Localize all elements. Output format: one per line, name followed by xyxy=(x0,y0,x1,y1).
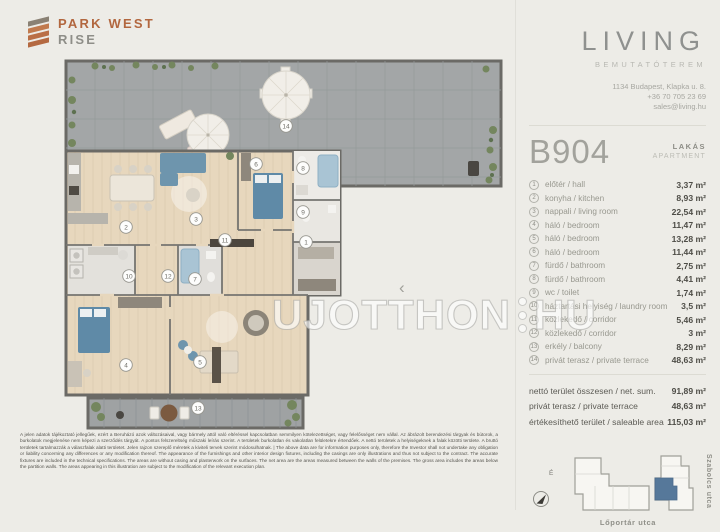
summary-row: privát terasz / private terrace48,63 m² xyxy=(529,399,706,415)
room-area: 8,93 m² xyxy=(676,193,706,203)
brand-name-line2: RISE xyxy=(58,32,155,47)
room-label: erkély / balcony xyxy=(545,342,602,351)
floor-plan-pin-number: 8 xyxy=(301,165,305,172)
unit-type-hu: LAKÁS xyxy=(653,142,706,151)
showroom-logo: LIVING xyxy=(529,26,706,57)
room-label: fürdő / bathroom xyxy=(545,261,605,270)
showroom-email: sales@living.hu xyxy=(529,102,706,112)
area-summary: nettó terület összesen / net. sum.91,89 … xyxy=(529,374,706,430)
floor-plan-pin-number: 11 xyxy=(222,237,229,244)
showroom-phone: +36 70 705 23 69 xyxy=(529,92,706,102)
room-row: 1előtér / hall3,37 m² xyxy=(529,178,706,192)
showroom-subtitle: BEMUTATÓTEREM xyxy=(529,60,706,69)
room-label: háló / bedroom xyxy=(545,234,600,243)
summary-label: privát terasz / private terrace xyxy=(529,401,638,411)
compass-north-label: É xyxy=(549,470,553,477)
room-area: 3,37 m² xyxy=(676,180,706,190)
brand-name-line1: PARK WEST xyxy=(58,16,155,31)
floor-plan-pin-number: 6 xyxy=(254,161,258,168)
room-row: 10háztartási helyiség / laundry room3,5 … xyxy=(529,300,706,314)
room-label: előtér / hall xyxy=(545,180,585,189)
room-area: 2,75 m² xyxy=(676,261,706,271)
summary-value: 91,89 m² xyxy=(672,386,706,396)
room-row: 3nappali / living room22,54 m² xyxy=(529,205,706,219)
floor-plan-drawing: 1234567891011121314 xyxy=(60,55,510,435)
room-row: 5háló / bedroom13,28 m² xyxy=(529,232,706,246)
room-number-badge: 14 xyxy=(529,355,539,365)
room-list: 1előtér / hall3,37 m²2konyha / kitchen8,… xyxy=(529,178,706,367)
room-number-badge: 3 xyxy=(529,207,539,217)
room-label: fürdő / bathroom xyxy=(545,275,605,284)
room-number-badge: 6 xyxy=(529,247,539,257)
room-label: konyha / kitchen xyxy=(545,194,604,203)
room-area: 3 m² xyxy=(688,328,706,338)
room-area: 11,47 m² xyxy=(672,220,706,230)
street-label-loportar: Lőportár utca xyxy=(553,518,703,527)
room-label: háztartási helyiség / laundry room xyxy=(545,302,667,311)
room-area: 11,44 m² xyxy=(672,247,706,257)
room-row: 14privát terasz / private terrace48,63 m… xyxy=(529,354,706,368)
floor-plan: 1234567891011121314 UJOTTHON HU ‹ xyxy=(60,55,510,435)
divider xyxy=(529,125,706,126)
floor-plan-pin-number: 3 xyxy=(194,216,198,223)
summary-value: 115,03 m² xyxy=(667,417,706,427)
room-row: 11közlekedő / corridor5,46 m² xyxy=(529,313,706,327)
room-area: 3,5 m² xyxy=(681,301,706,311)
room-number-badge: 1 xyxy=(529,180,539,190)
unit-code: B904 xyxy=(529,135,610,169)
room-row: 4háló / bedroom11,47 m² xyxy=(529,219,706,233)
room-row: 8fürdő / bathroom4,41 m² xyxy=(529,273,706,287)
showroom-address: 1134 Budapest, Klapka u. 8. xyxy=(529,82,706,92)
room-area: 13,28 m² xyxy=(672,234,706,244)
room-row: 9wc / toilet1,74 m² xyxy=(529,286,706,300)
floor-plan-pin-number: 9 xyxy=(301,209,305,216)
summary-row: nettó terület összesen / net. sum.91,89 … xyxy=(529,383,706,399)
unit-type-en: APARTMENT xyxy=(653,153,706,160)
floor-plan-pin-number: 2 xyxy=(124,224,128,231)
summary-label: értékesíthető terület / saleable area xyxy=(529,417,664,427)
room-row: 6háló / bedroom11,44 m² xyxy=(529,246,706,260)
room-label: privát terasz / private terrace xyxy=(545,356,649,365)
floor-plan-pin-number: 7 xyxy=(193,276,197,283)
room-row: 13erkély / balcony8,29 m² xyxy=(529,340,706,354)
floor-plan-pin-number: 14 xyxy=(282,123,290,130)
floor-plan-pin-number: 10 xyxy=(125,273,133,280)
room-area: 4,41 m² xyxy=(676,274,706,284)
room-label: háló / bedroom xyxy=(545,221,600,230)
disclaimer-text: A jelen adatok tájékoztató jellegűek, ez… xyxy=(20,432,498,471)
room-number-badge: 13 xyxy=(529,342,539,352)
chevron-left-icon[interactable]: ‹ xyxy=(399,279,405,296)
room-area: 8,29 m² xyxy=(676,342,706,352)
brand-stripes-icon xyxy=(28,19,49,45)
room-row: 7fürdő / bathroom2,75 m² xyxy=(529,259,706,273)
room-row: 12közlekedő / corridor3 m² xyxy=(529,327,706,341)
room-number-badge: 11 xyxy=(529,315,539,325)
room-number-badge: 12 xyxy=(529,328,539,338)
room-label: wc / toilet xyxy=(545,288,579,297)
showroom-contact: 1134 Budapest, Klapka u. 8. +36 70 705 2… xyxy=(529,82,706,112)
room-number-badge: 5 xyxy=(529,234,539,244)
room-number-badge: 4 xyxy=(529,220,539,230)
summary-row: értékesíthető terület / saleable area115… xyxy=(529,414,706,430)
summary-label: nettó terület összesen / net. sum. xyxy=(529,386,656,396)
room-row: 2konyha / kitchen8,93 m² xyxy=(529,192,706,206)
room-label: nappali / living room xyxy=(545,207,618,216)
floor-plan-pin-number: 1 xyxy=(304,239,308,246)
summary-value: 48,63 m² xyxy=(672,401,706,411)
site-plan: É Szabolcs utca Lőportár utca xyxy=(529,454,706,532)
room-number-badge: 10 xyxy=(529,301,539,311)
floor-plan-pin-number: 4 xyxy=(124,362,128,369)
street-label-szabolcs: Szabolcs utca xyxy=(705,454,712,508)
room-label: háló / bedroom xyxy=(545,248,600,257)
floor-plan-pin-number: 12 xyxy=(164,273,172,280)
info-panel: LIVING BEMUTATÓTEREM 1134 Budapest, Klap… xyxy=(515,0,720,510)
unit-header: B904 LAKÁS APARTMENT xyxy=(529,135,706,169)
floor-plan-pin-number: 5 xyxy=(198,359,202,366)
room-number-badge: 7 xyxy=(529,261,539,271)
room-area: 48,63 m² xyxy=(672,355,706,365)
room-number-badge: 8 xyxy=(529,274,539,284)
park-west-rise-logo: PARK WEST RISE xyxy=(28,16,155,47)
room-number-badge: 9 xyxy=(529,288,539,298)
floor-plan-pin-number: 13 xyxy=(194,405,202,412)
room-label: közlekedő / corridor xyxy=(545,315,616,324)
room-number-badge: 2 xyxy=(529,193,539,203)
site-plan-buildings xyxy=(563,454,697,514)
room-area: 1,74 m² xyxy=(676,288,706,298)
room-area: 5,46 m² xyxy=(676,315,706,325)
room-label: közlekedő / corridor xyxy=(545,329,616,338)
room-area: 22,54 m² xyxy=(672,207,706,217)
